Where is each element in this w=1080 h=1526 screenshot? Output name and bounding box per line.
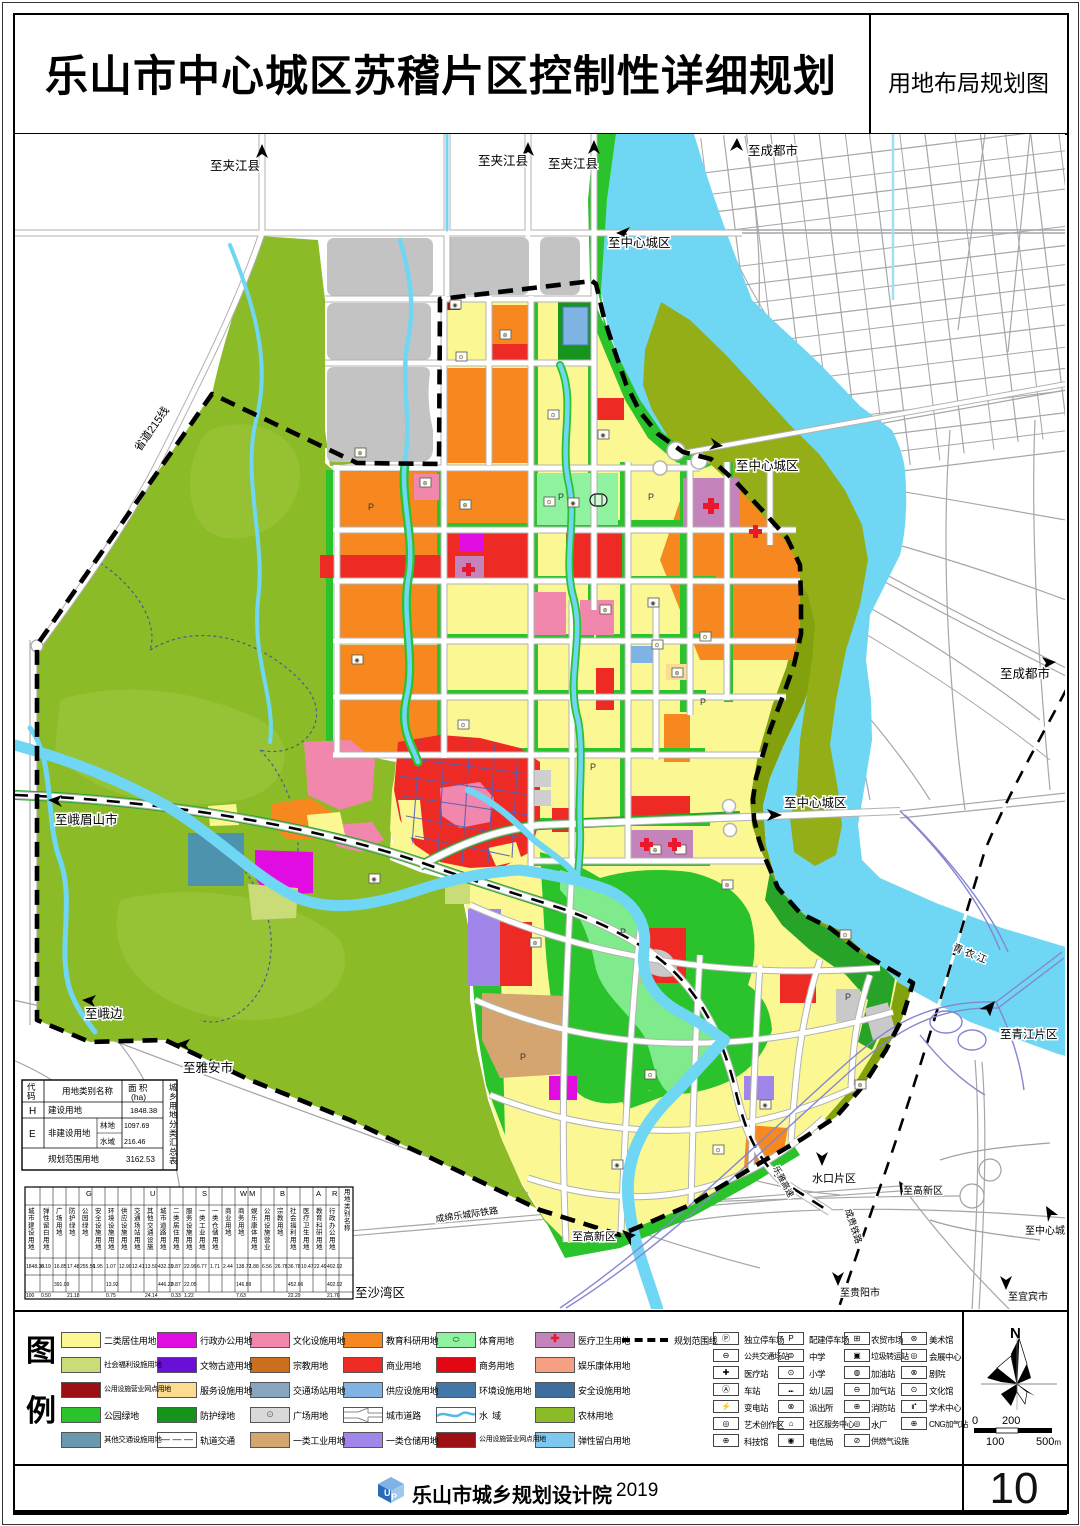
- svg-text:至夹江县: 至夹江县: [478, 154, 528, 168]
- svg-text:22.99: 22.99: [184, 1264, 197, 1270]
- svg-text:供应设施用地: 供应设施用地: [121, 1206, 128, 1251]
- svg-text:17.48: 17.48: [67, 1264, 80, 1270]
- svg-text:100: 100: [26, 1293, 35, 1299]
- svg-text:1.07: 1.07: [106, 1264, 116, 1270]
- svg-text:至沙湾区: 至沙湾区: [355, 1285, 405, 1300]
- svg-text:⊛: ⊛: [857, 1083, 862, 1089]
- svg-text:医疗卫生用地: 医疗卫生用地: [303, 1207, 310, 1251]
- svg-text:9.87: 9.87: [171, 1264, 181, 1270]
- svg-text:至夹江县: 至夹江县: [548, 157, 598, 171]
- svg-text:U: U: [150, 1189, 155, 1198]
- svg-text:⊛: ⊛: [602, 608, 607, 614]
- svg-text:服务设施用地: 服务设施用地: [186, 1207, 193, 1251]
- svg-text:广场用地: 广场用地: [56, 1206, 63, 1237]
- svg-text:21.18: 21.18: [67, 1293, 80, 1299]
- svg-text:0.50: 0.50: [41, 1293, 51, 1299]
- svg-text:200: 200: [1002, 1415, 1020, 1427]
- svg-text:至成都市: 至成都市: [1000, 666, 1050, 681]
- svg-text:10.47: 10.47: [301, 1264, 314, 1270]
- svg-text:行政办公用地: 行政办公用地: [329, 1206, 336, 1251]
- svg-text:452.66: 452.66: [288, 1282, 304, 1288]
- svg-text:⊙: ⊙: [715, 1148, 720, 1154]
- svg-text:至中心城区: 至中心城区: [736, 458, 799, 473]
- svg-text:一类仓储用地: 一类仓储用地: [212, 1208, 219, 1251]
- svg-text:12.90: 12.90: [119, 1264, 132, 1270]
- svg-text:⊕: ⊕: [462, 503, 467, 509]
- svg-text:146.89: 146.89: [236, 1282, 252, 1288]
- svg-text:⊛: ⊛: [674, 671, 679, 677]
- svg-text:至青江片区: 至青江片区: [1000, 1028, 1058, 1041]
- svg-text:至峨边: 至峨边: [85, 1007, 123, 1021]
- svg-text:E: E: [29, 1129, 36, 1140]
- svg-text:P: P: [620, 927, 626, 937]
- svg-text:⊕: ⊕: [357, 451, 362, 457]
- svg-text:⊙: ⊙: [654, 643, 659, 649]
- svg-text:⊙: ⊙: [458, 355, 463, 361]
- svg-text:U: U: [384, 1488, 391, 1498]
- svg-text:1.71: 1.71: [210, 1264, 220, 1270]
- svg-text:至高新区: 至高新区: [572, 1229, 616, 1243]
- svg-text:B: B: [280, 1189, 285, 1198]
- svg-text:1.22: 1.22: [184, 1293, 194, 1299]
- svg-text:391.09: 391.09: [54, 1282, 70, 1288]
- svg-text:16.85: 16.85: [54, 1264, 67, 1270]
- svg-text:1.88: 1.88: [249, 1264, 259, 1270]
- svg-text:宗教用地: 宗教用地: [277, 1206, 284, 1237]
- svg-text:◉: ◉: [354, 658, 359, 664]
- svg-text:非建设用地: 非建设用地: [48, 1128, 91, 1138]
- svg-text:1848.38: 1848.38: [130, 1106, 157, 1115]
- svg-text:⊛: ⊛: [502, 333, 507, 339]
- svg-text:P: P: [391, 1492, 397, 1502]
- svg-text:⊛: ⊛: [532, 941, 537, 947]
- svg-text:水域: 水域: [100, 1136, 115, 1146]
- svg-text:⊙: ⊙: [842, 933, 847, 939]
- svg-text:城市建设用地: 城市建设用地: [28, 1207, 35, 1251]
- svg-text:P: P: [845, 992, 851, 1002]
- svg-text:22.49: 22.49: [314, 1264, 327, 1270]
- svg-text:24.14: 24.14: [145, 1293, 158, 1299]
- svg-text:至夹江县: 至夹江县: [210, 159, 260, 173]
- svg-text:其他交通设施: 其他交通设施: [147, 1207, 154, 1251]
- svg-text:P: P: [520, 1052, 526, 1062]
- svg-text:0.75: 0.75: [106, 1293, 116, 1299]
- svg-text:至峨眉山市: 至峨眉山市: [55, 812, 118, 827]
- svg-text:公用设施营业: 公用设施营业: [264, 1208, 271, 1251]
- svg-text:0: 0: [972, 1415, 978, 1427]
- svg-text:城市道路用地: 城市道路用地: [160, 1207, 167, 1251]
- svg-text:402.02: 402.02: [327, 1282, 343, 1288]
- svg-text:6.77: 6.77: [197, 1264, 207, 1270]
- svg-text:R: R: [332, 1189, 338, 1198]
- svg-text:至高新区: 至高新区: [903, 1184, 943, 1197]
- svg-text:至贵阳市: 至贵阳市: [840, 1286, 880, 1299]
- svg-text:P: P: [700, 697, 706, 707]
- svg-text:社会福利用地: 社会福利用地: [290, 1206, 297, 1251]
- svg-text:⊙: ⊙: [546, 500, 551, 506]
- svg-text:◉: ◉: [570, 501, 575, 507]
- svg-text:21.76: 21.76: [327, 1293, 340, 1299]
- svg-text:◉: ◉: [614, 1163, 619, 1169]
- svg-text:◉: ◉: [650, 601, 655, 607]
- svg-text:建设用地: 建设用地: [48, 1105, 83, 1115]
- svg-text:402.02: 402.02: [327, 1264, 343, 1270]
- svg-text:22.05: 22.05: [184, 1282, 197, 1288]
- svg-text:安全设施用地: 安全设施用地: [95, 1206, 102, 1251]
- svg-text:城乡用地分类汇总表: 城乡用地分类汇总表: [169, 1083, 177, 1166]
- svg-text:至中心城区: 至中心城区: [1025, 1224, 1065, 1237]
- svg-text:2.44: 2.44: [223, 1264, 233, 1270]
- svg-text:22.29: 22.29: [288, 1293, 301, 1299]
- svg-text:3162.53: 3162.53: [126, 1155, 155, 1164]
- svg-text:◉: ◉: [371, 877, 376, 883]
- svg-text:500m: 500m: [1036, 1436, 1061, 1448]
- svg-text:公园绿地: 公园绿地: [82, 1208, 89, 1237]
- svg-text:娱乐康体用地: 娱乐康体用地: [251, 1206, 258, 1251]
- svg-text:至中心城区: 至中心城区: [608, 235, 671, 250]
- svg-text:13.92: 13.92: [106, 1282, 119, 1288]
- svg-text:6.56: 6.56: [262, 1264, 272, 1270]
- svg-text:P: P: [590, 762, 596, 772]
- svg-text:216.46: 216.46: [124, 1139, 146, 1146]
- svg-text:教育科研用地: 教育科研用地: [316, 1206, 323, 1251]
- svg-text:码: 码: [27, 1091, 36, 1101]
- svg-text:9.87: 9.87: [171, 1282, 181, 1288]
- svg-text:◉: ◉: [452, 303, 457, 309]
- svg-text:P: P: [648, 492, 654, 502]
- svg-text:A: A: [316, 1189, 321, 1198]
- svg-text:至宜宾市: 至宜宾市: [1008, 1290, 1048, 1303]
- svg-text:⊙: ⊙: [550, 413, 555, 419]
- svg-text:⊙: ⊙: [702, 635, 707, 641]
- svg-text:0.19: 0.19: [41, 1264, 51, 1270]
- svg-text:一类工业用地: 一类工业用地: [199, 1208, 206, 1251]
- svg-text:防护绿地: 防护绿地: [69, 1206, 76, 1237]
- svg-text:弹性留白用地: 弹性留白用地: [43, 1206, 50, 1251]
- svg-text:二类居住用地: 二类居住用地: [173, 1208, 180, 1251]
- svg-text:环境设施用地: 环境设施用地: [108, 1207, 115, 1251]
- svg-text:⊕: ⊕: [652, 848, 657, 854]
- svg-text:1.95: 1.95: [93, 1264, 103, 1270]
- svg-text:至中心城区: 至中心城区: [784, 795, 847, 810]
- svg-text:至雅安市: 至雅安市: [183, 1060, 233, 1075]
- svg-text:商务用地: 商务用地: [238, 1206, 245, 1237]
- svg-text:林地: 林地: [100, 1120, 115, 1130]
- svg-text:⊙: ⊙: [647, 1073, 652, 1079]
- svg-text:13.50: 13.50: [145, 1264, 158, 1270]
- svg-text:水口片区: 水口片区: [812, 1172, 856, 1185]
- svg-text:用地类别名称: 用地类别名称: [62, 1086, 114, 1096]
- svg-text:S: S: [202, 1189, 207, 1198]
- svg-text:W M: W M: [240, 1189, 255, 1198]
- svg-text:7.63: 7.63: [236, 1293, 246, 1299]
- svg-text:26.78: 26.78: [275, 1264, 288, 1270]
- svg-text:交通场站用地: 交通场站用地: [134, 1206, 141, 1251]
- svg-text:P: P: [368, 502, 374, 512]
- svg-text:用地类别名称: 用地类别名称: [344, 1188, 351, 1232]
- svg-text:0.33: 0.33: [171, 1293, 181, 1299]
- svg-text:◉: ◉: [600, 433, 605, 439]
- svg-text:G: G: [86, 1189, 92, 1198]
- svg-text:规划范围用地: 规划范围用地: [48, 1154, 100, 1164]
- svg-text:⊛: ⊛: [724, 883, 729, 889]
- svg-text:商业用地: 商业用地: [225, 1206, 232, 1237]
- svg-text:100: 100: [986, 1436, 1004, 1448]
- svg-text:H: H: [29, 1106, 36, 1117]
- svg-text:36.78: 36.78: [288, 1264, 301, 1270]
- svg-text:至成都市: 至成都市: [748, 143, 798, 158]
- svg-text:⊙: ⊙: [460, 723, 465, 729]
- svg-text:12.41: 12.41: [132, 1264, 145, 1270]
- svg-text:⊛: ⊛: [422, 481, 427, 487]
- svg-text:1097.69: 1097.69: [124, 1123, 149, 1130]
- svg-text:(ha): (ha): [131, 1092, 146, 1102]
- svg-text:◉: ◉: [762, 1103, 767, 1109]
- svg-text:P: P: [558, 492, 564, 502]
